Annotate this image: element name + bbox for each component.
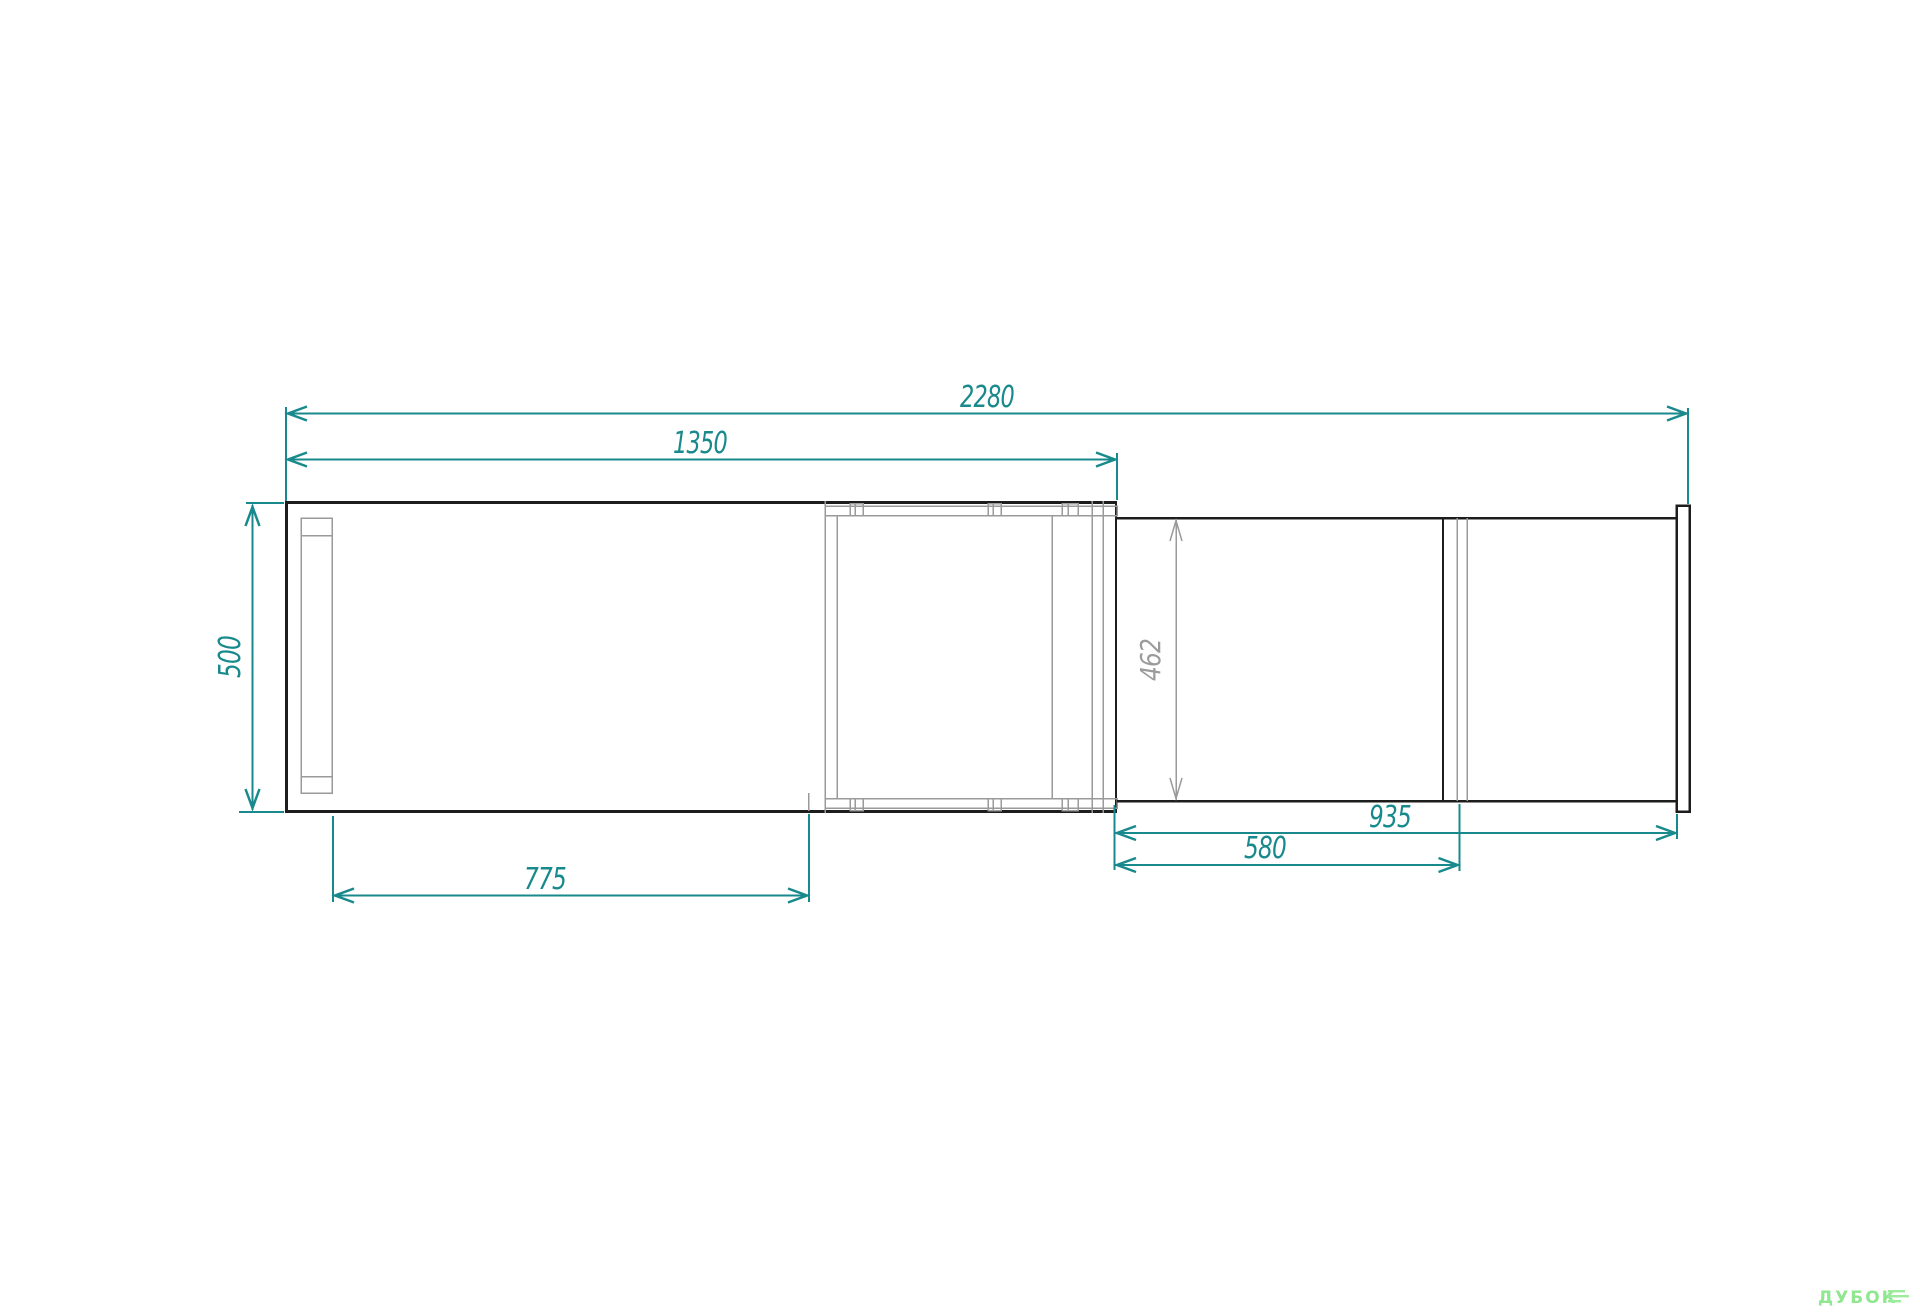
dim-pullout-depth: 462 [1134, 519, 1182, 800]
dim-door-opening: 775 [333, 814, 809, 903]
dim-label-cabinet-width: 1350 [673, 426, 727, 461]
dim-pullout-width: 935 [1115, 800, 1678, 870]
pullout-end-panel [1677, 506, 1690, 812]
cabinet-outline [285, 501, 1117, 813]
pullout-section [1117, 506, 1690, 812]
dim-label-pullout-depth: 462 [1134, 639, 1167, 681]
brand-logo: ДУБОК [1818, 1288, 1909, 1308]
dim-cabinet-depth: 500 [213, 503, 284, 812]
brand-logo-text: ДУБОК [1818, 1288, 1898, 1308]
tagline-bar [1888, 1300, 1901, 1302]
dim-total-width: 2280 [286, 380, 1688, 504]
brand-logo-tagline-bars [1888, 1290, 1909, 1302]
dim-label-pullout-width: 935 [1369, 800, 1411, 835]
tagline-bar [1888, 1290, 1905, 1292]
table-top-rail [825, 506, 1117, 516]
left-rail-outline [301, 518, 332, 793]
dim-cabinet-width: 1350 [286, 426, 1117, 500]
left-door-rail [301, 518, 332, 793]
furniture-drawing-canvas: 2280 1350 500 775 462 [0, 0, 1920, 1314]
dim-label-pullout-inner-width: 580 [1244, 831, 1286, 866]
table-bottom-rail [825, 799, 1117, 809]
dim-label-cabinet-depth: 500 [213, 636, 248, 678]
dim-label-total-width: 2280 [960, 380, 1014, 415]
dim-label-door-opening: 775 [524, 862, 566, 897]
pullout-table-frame [809, 501, 1118, 813]
tagline-bar [1888, 1295, 1909, 1297]
